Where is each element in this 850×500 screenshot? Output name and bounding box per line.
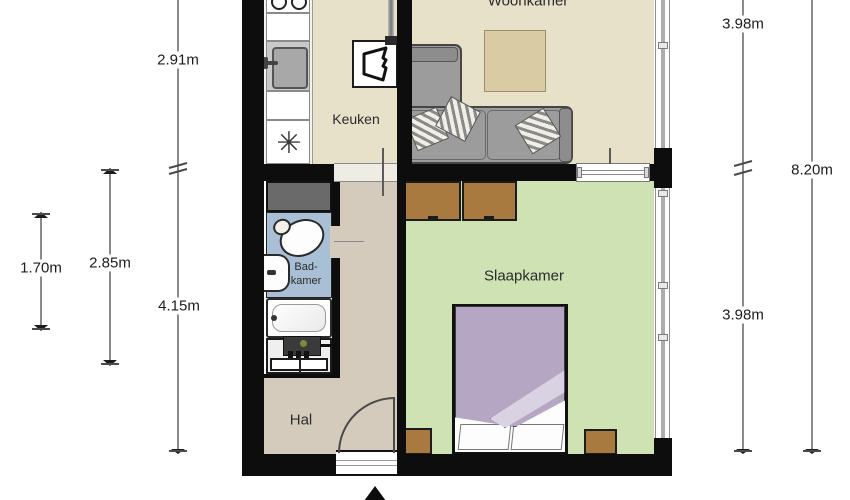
dim-label-4-15: 4.15m <box>156 298 202 315</box>
room-label-hal: Hal <box>290 412 313 429</box>
dim-label-2-85: 2.85m <box>87 255 133 272</box>
floor-plan-canvas: ✳ <box>0 0 850 500</box>
room-label-slaapkamer: Slaapkamer <box>484 268 564 285</box>
room-label-woonkamer: Woonkamer <box>488 0 569 10</box>
dim-label-3-98-top: 3.98m <box>720 16 766 33</box>
room-label-keuken: Keuken <box>332 111 379 127</box>
room-label-badkamer-line1: Bad- <box>294 261 317 273</box>
dim-label-2-91: 2.91m <box>155 52 201 69</box>
room-label-badkamer-line2: kamer <box>291 275 322 287</box>
dim-label-3-98-bottom: 3.98m <box>720 307 766 324</box>
dim-label-8-20: 8.20m <box>789 162 835 179</box>
dimension-lines <box>0 0 850 500</box>
dim-label-1-70: 1.70m <box>18 260 64 277</box>
